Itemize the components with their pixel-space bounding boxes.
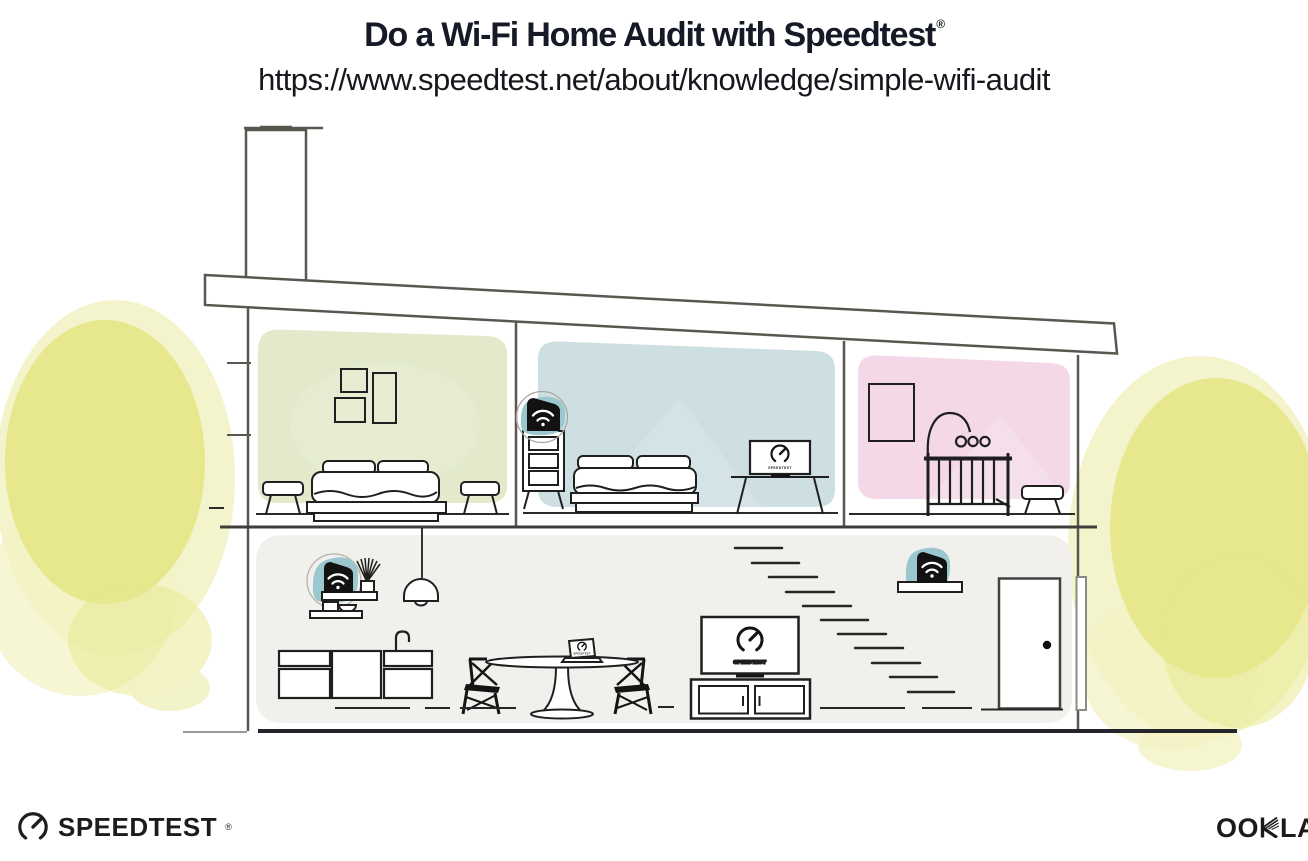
speedtest-registered: ® [225,822,232,832]
ookla-logo: OO LA ® [1216,813,1308,843]
ookla-k-glyph [1260,817,1279,843]
tv-console [691,680,810,719]
ookla-logo-oo: OO [1216,813,1259,843]
stool [1022,486,1063,514]
tree-left [0,300,235,711]
door-knob [1043,641,1051,649]
speedtest-logo-text: SPEEDTEST [58,812,217,843]
tv-living-room: SPEEDTEST [702,617,799,678]
tv-caption: SPEEDTEST [768,466,792,470]
door-sidelight [1077,577,1087,710]
laptop-caption: SPEEDTEST [574,653,591,656]
wifi-home-audit-infographic: Do a Wi-Fi Home Audit with Speedtest® ht… [0,0,1308,861]
tv-caption: SPEEDTEST [734,660,767,665]
tree-right [1068,356,1308,771]
speedtest-gauge-icon [16,810,50,844]
chimney [244,128,323,282]
wifi-mesh-point-bedroom [517,392,568,443]
ookla-logo-la: LA [1280,813,1308,843]
house-cross-section-illustration: SPEEDTEST [0,0,1308,861]
speedtest-logo: SPEEDTEST ® [16,810,232,844]
